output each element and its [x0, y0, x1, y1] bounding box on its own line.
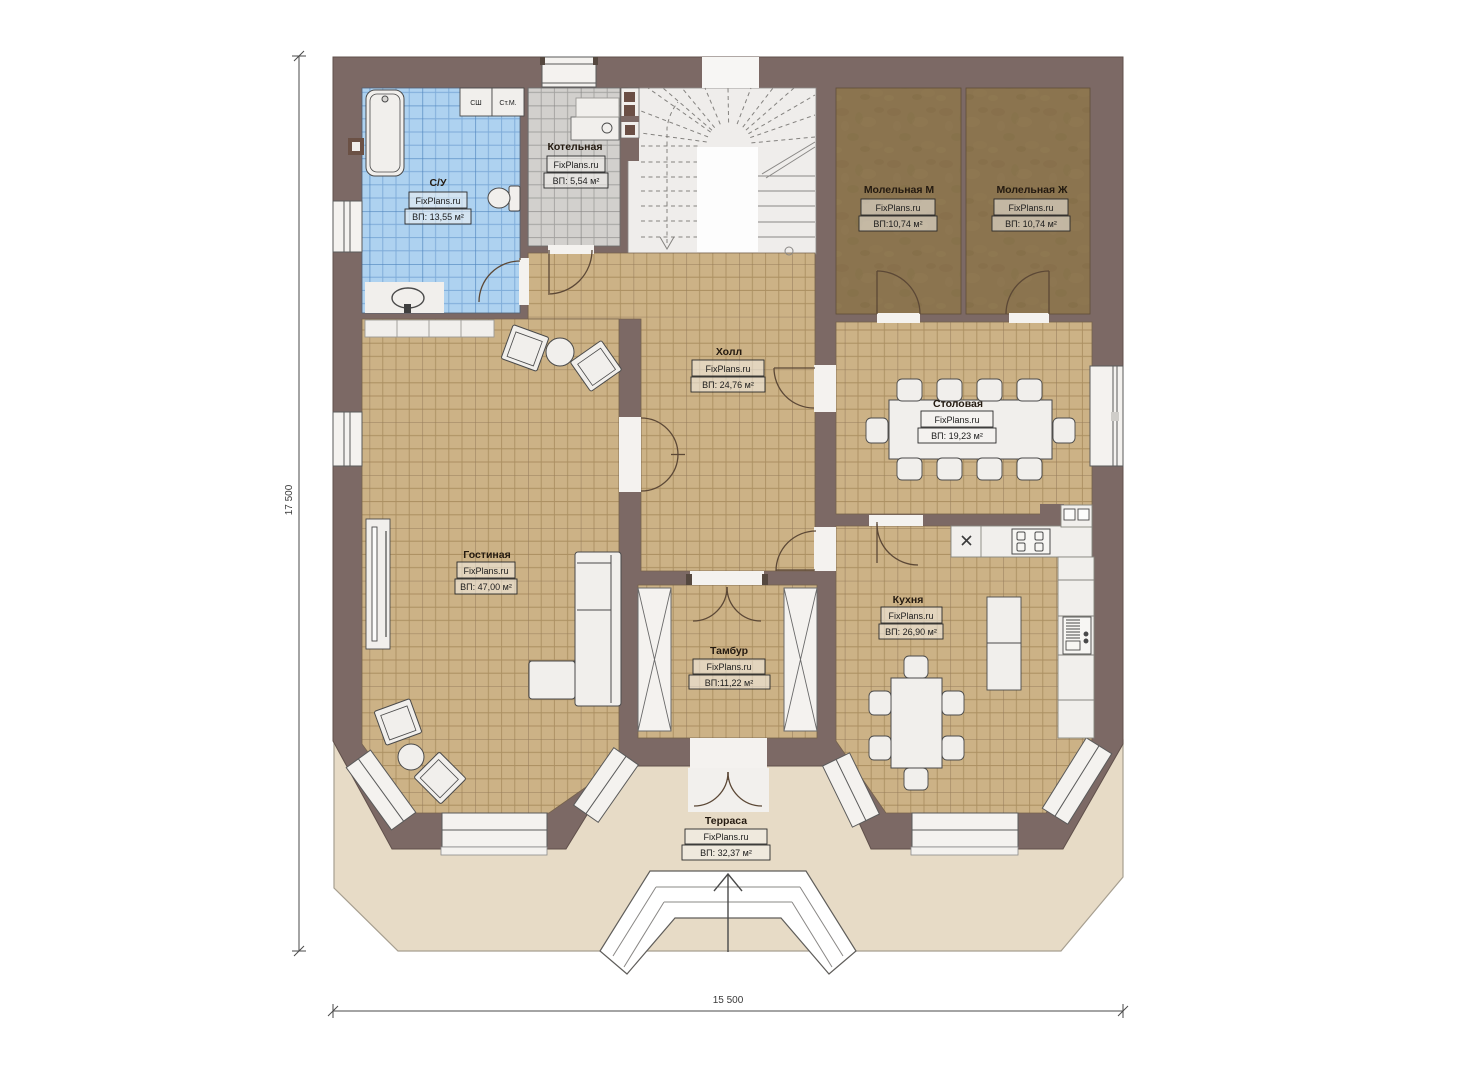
svg-text:FixPlans.ru: FixPlans.ru	[463, 566, 508, 576]
svg-text:ВП: 32,37 м²: ВП: 32,37 м²	[700, 848, 752, 858]
svg-text:Котельная: Котельная	[548, 141, 603, 153]
svg-text:Холл: Холл	[716, 346, 742, 358]
svg-text:ВП:10,74 м²: ВП:10,74 м²	[873, 219, 922, 229]
svg-text:ВП: 13,55 м²: ВП: 13,55 м²	[412, 212, 464, 222]
svg-text:FixPlans.ru: FixPlans.ru	[415, 196, 460, 206]
svg-text:Молельная Ж: Молельная Ж	[996, 184, 1068, 196]
svg-text:FixPlans.ru: FixPlans.ru	[888, 611, 933, 621]
svg-text:FixPlans.ru: FixPlans.ru	[706, 662, 751, 672]
svg-text:ВП: 24,76 м²: ВП: 24,76 м²	[702, 380, 754, 390]
svg-text:Гостиная: Гостиная	[463, 549, 510, 561]
svg-text:ВП: 5,54 м²: ВП: 5,54 м²	[553, 176, 600, 186]
svg-text:Столовая: Столовая	[933, 398, 983, 410]
svg-text:СШ: СШ	[470, 100, 481, 107]
svg-text:ВП: 47,00 м²: ВП: 47,00 м²	[460, 582, 512, 592]
svg-text:FixPlans.ru: FixPlans.ru	[934, 415, 979, 425]
svg-text:Тамбур: Тамбур	[710, 645, 748, 657]
svg-text:ВП: 26,90 м²: ВП: 26,90 м²	[885, 627, 937, 637]
svg-text:ВП:11,22 м²: ВП:11,22 м²	[705, 678, 754, 688]
svg-text:FixPlans.ru: FixPlans.ru	[553, 160, 598, 170]
svg-text:С/У: С/У	[429, 177, 447, 189]
svg-text:17 500: 17 500	[284, 484, 295, 515]
svg-text:Кухня: Кухня	[893, 594, 924, 606]
svg-text:Ст.М.: Ст.М.	[499, 100, 516, 107]
svg-text:Терраса: Терраса	[705, 815, 747, 827]
svg-text:FixPlans.ru: FixPlans.ru	[705, 364, 750, 374]
svg-text:ВП: 10,74 м²: ВП: 10,74 м²	[1005, 219, 1057, 229]
svg-text:15 500: 15 500	[713, 995, 744, 1006]
svg-text:ВП: 19,23 м²: ВП: 19,23 м²	[931, 431, 983, 441]
svg-text:FixPlans.ru: FixPlans.ru	[703, 832, 748, 842]
svg-text:FixPlans.ru: FixPlans.ru	[875, 203, 920, 213]
svg-text:FixPlans.ru: FixPlans.ru	[1008, 203, 1053, 213]
svg-text:Молельная М: Молельная М	[864, 184, 935, 196]
